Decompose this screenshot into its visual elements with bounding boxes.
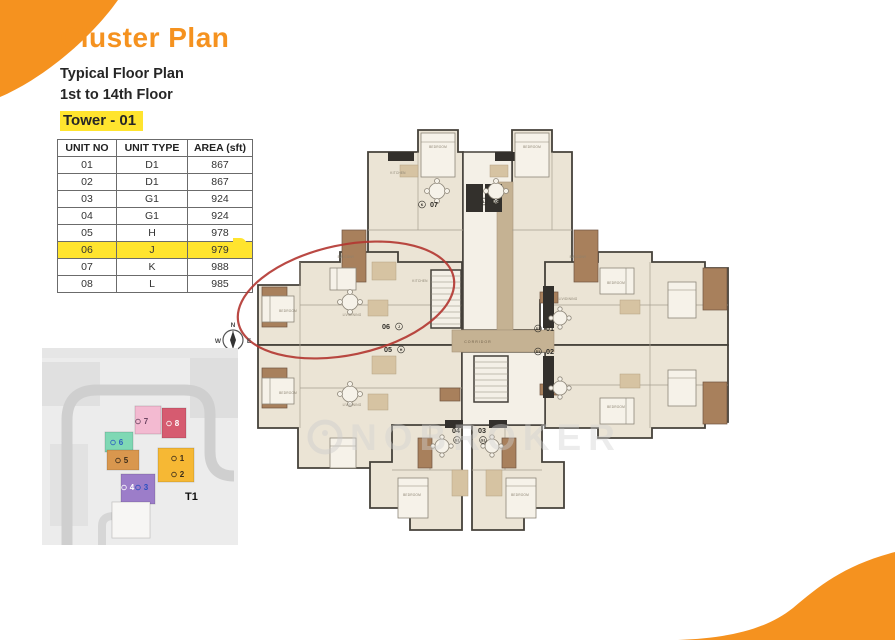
svg-text:N: N [231, 322, 236, 329]
svg-text:BEDROOM: BEDROOM [511, 493, 529, 497]
site-map-inset: 78651243 T1 [42, 348, 238, 545]
svg-text:E: E [247, 338, 252, 345]
svg-text:BEDROOM: BEDROOM [403, 493, 421, 497]
svg-text:BEDROOM: BEDROOM [279, 309, 297, 313]
svg-text:BEDROOM: BEDROOM [607, 405, 625, 409]
svg-text:BEDROOM: BEDROOM [279, 391, 297, 395]
svg-text:01: 01 [546, 324, 554, 333]
svg-text:BEDROOM: BEDROOM [607, 281, 625, 285]
svg-text:2: 2 [180, 470, 185, 479]
svg-text:4: 4 [130, 483, 135, 492]
svg-text:BALCONY: BALCONY [570, 255, 587, 259]
svg-text:BEDROOM: BEDROOM [523, 145, 541, 149]
corridor-label: CORRIDOR [464, 340, 492, 344]
svg-text:5: 5 [124, 456, 129, 465]
svg-text:07: 07 [430, 200, 438, 209]
cluster-plan-page: Cluster Plan Typical Floor Plan 1st to 1… [0, 0, 895, 640]
svg-text:KITCHEN: KITCHEN [390, 171, 406, 175]
watermark: NOBROKER [310, 417, 622, 458]
svg-text:BALCONY: BALCONY [338, 255, 355, 259]
svg-text:1: 1 [180, 454, 185, 463]
svg-text:K: K [421, 203, 424, 207]
svg-text:02: 02 [546, 347, 554, 356]
svg-text:06: 06 [382, 322, 390, 331]
svg-text:LIV/DINING: LIV/DINING [343, 313, 362, 317]
site-map-tower-label: T1 [185, 491, 198, 503]
svg-text:BEDROOM: BEDROOM [429, 145, 447, 149]
svg-text:7: 7 [144, 417, 149, 426]
svg-text:8: 8 [175, 419, 180, 428]
staircase-left [431, 270, 461, 328]
svg-text:H: H [400, 348, 403, 352]
svg-text:KITCHEN: KITCHEN [412, 279, 428, 283]
svg-text:6: 6 [119, 438, 124, 447]
svg-text:LIV/DINING: LIV/DINING [559, 297, 578, 301]
svg-text:08: 08 [492, 197, 500, 206]
svg-text:3: 3 [144, 483, 149, 492]
staircase-center [474, 356, 508, 402]
watermark-text: NOBROKER [350, 417, 622, 458]
svg-text:J: J [398, 325, 400, 329]
svg-text:D1: D1 [536, 327, 541, 331]
svg-text:W: W [215, 338, 222, 345]
svg-text:D1: D1 [536, 350, 541, 354]
floor-plan-geometry: CORRIDOR [258, 130, 728, 530]
svg-text:LIV/DINING: LIV/DINING [343, 403, 362, 407]
